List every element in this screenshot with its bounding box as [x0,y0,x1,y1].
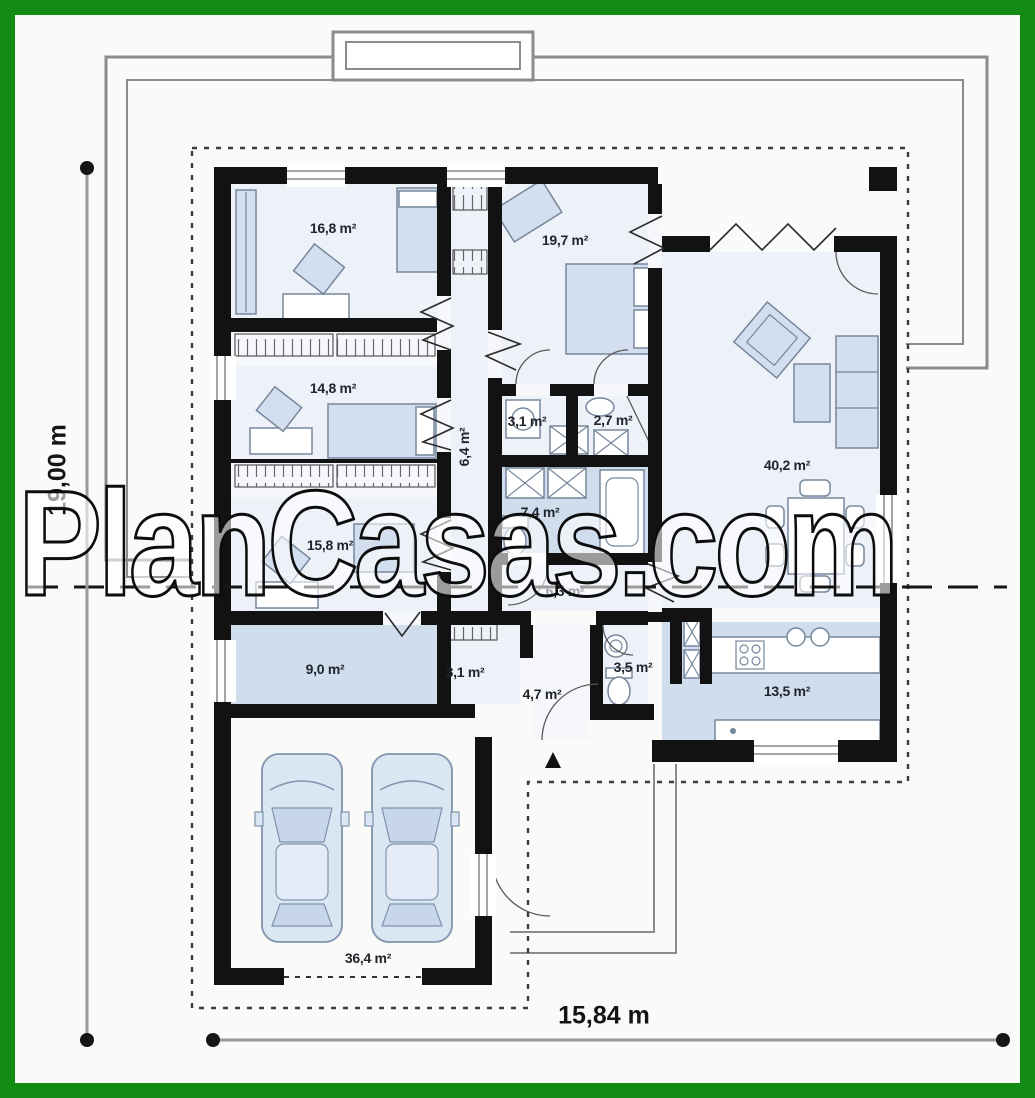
car [365,754,459,942]
room-area-label: 3,1 m² [508,413,547,429]
room-area-label: 3,1 m² [446,664,485,680]
folding-door [710,224,836,250]
sofa [836,336,878,448]
horizontal-dimension-label: 15,84 m [558,1002,650,1031]
room-area-label: 3,5 m² [614,659,653,675]
desk [283,294,349,320]
pillow [399,191,437,207]
pillow [416,407,434,455]
toilet [608,677,630,705]
chimney [333,32,533,80]
room-area-label: 4,7 m² [523,686,562,702]
kitchen-sink [811,628,829,646]
pillow [634,310,650,348]
coffee-table [794,364,830,422]
terrace-canopy-line [510,764,654,932]
room-area-label: 19,7 m² [542,232,588,248]
room-area-label: 14,8 m² [310,380,356,396]
kitchen-sink [787,628,805,646]
room-area-label: 9,0 m² [306,661,345,677]
entrance-arrow [545,752,561,768]
pillow [634,268,650,306]
room-area-label: 36,4 m² [345,950,391,966]
room-area-label: 16,8 m² [310,220,356,236]
room-area-label: 2,7 m² [594,412,633,428]
floor-plan-image: 16,8 m² 19,7 m² 14,8 m² 3,1 m² 2,7 m² 6,… [0,0,1035,1098]
room-area-label: 13,5 m² [764,683,810,699]
car [255,754,349,942]
desk [250,428,312,454]
watermark-text: PlanCasas.com [18,468,895,618]
